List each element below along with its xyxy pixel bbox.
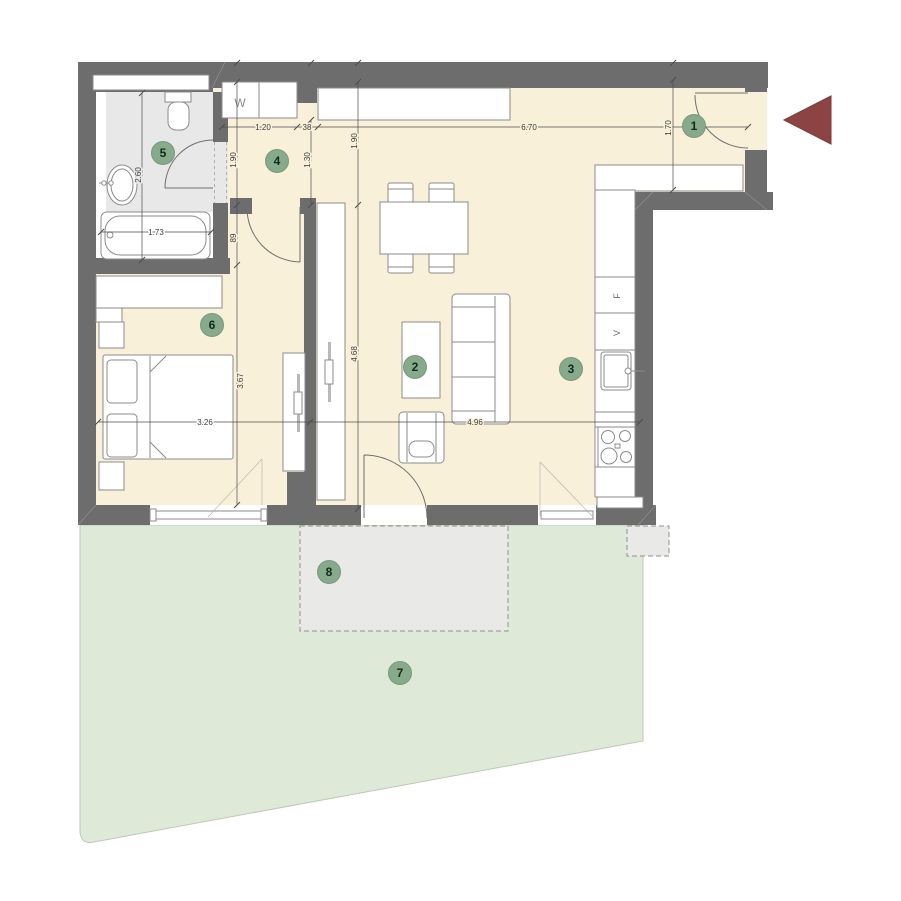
dim-entry-depth: 1.70	[664, 120, 673, 136]
dim-living-depth: 4.68	[350, 346, 359, 362]
room-badge-3: 3	[560, 358, 583, 381]
washer-closet-right	[259, 82, 297, 118]
floor-plan-svg: W F V	[0, 0, 901, 901]
entry-doorway-floor	[745, 92, 767, 150]
bedroom-window-cap-left	[150, 509, 156, 521]
sofa	[452, 294, 510, 424]
room-badge-2: 2	[404, 356, 427, 379]
badge-number-2: 2	[412, 360, 419, 374]
badge-number-4: 4	[274, 154, 281, 168]
room-badge-6: 6	[201, 314, 224, 337]
dim-door-width: 89	[229, 233, 238, 242]
wall-entry-cap-top	[745, 62, 767, 92]
entrance-arrow-icon	[784, 96, 831, 144]
nightstand-top	[99, 322, 124, 348]
toilet-bowl	[168, 102, 189, 130]
chair-top-left	[388, 183, 413, 203]
dining-table	[380, 202, 468, 254]
bedroom-window-frame	[153, 511, 264, 519]
hall-closets: W	[222, 82, 510, 120]
badge-number-6: 6	[209, 318, 216, 332]
wall-niche-chunk	[297, 83, 317, 103]
nightstand-bottom	[99, 462, 124, 490]
bedroom-wardrobe-step	[96, 308, 122, 322]
pillow-top	[107, 360, 137, 403]
wall-kitchen-top	[633, 192, 773, 210]
bath-door-opening-floor	[213, 142, 228, 203]
bedroom-wardrobe-top	[96, 276, 222, 308]
dim-hall-left-depth: 1.90	[229, 152, 238, 168]
dim-hall-mid-depth: 1.30	[303, 152, 312, 168]
room-badge-8: 8	[318, 561, 341, 584]
dim-niche-width: 38	[303, 123, 312, 132]
terrace-door-opening	[361, 505, 427, 525]
room-badge-4: 4	[266, 150, 289, 173]
top-counter	[318, 88, 510, 120]
living-closet-handle	[325, 360, 333, 384]
room-badge-1: 1	[683, 115, 706, 138]
chair-bottom-right	[429, 253, 454, 273]
chair-bottom-left	[388, 253, 413, 273]
kitchen-faucet-base	[625, 368, 631, 374]
kitchen-window-sill	[597, 497, 643, 508]
dim-bath-depth: 2.60	[134, 167, 143, 183]
washer-label: W	[234, 96, 246, 110]
kitchen-fixtures: F V	[595, 165, 743, 497]
wall-right-lower	[635, 210, 653, 525]
site	[80, 525, 669, 843]
wall-entry-cap-bottom	[745, 150, 767, 192]
side-step-area	[627, 526, 669, 556]
chair-top-right	[429, 183, 454, 203]
badge-number-1: 1	[691, 119, 698, 133]
badge-number-3: 3	[568, 362, 575, 376]
wall-left	[78, 62, 96, 525]
floor-plan-page: W F V	[0, 0, 901, 901]
dim-hall-right-depth: 1.90	[350, 133, 359, 149]
toilet-tank	[165, 92, 191, 102]
armchair	[399, 412, 444, 463]
ventilation-label: V	[612, 330, 622, 336]
fridge-label: F	[612, 293, 622, 299]
wall-central-pier	[287, 472, 316, 505]
room-badge-5: 5	[152, 142, 175, 165]
dim-bedroom-width: 3.26	[197, 418, 213, 427]
sink-tap-1	[102, 181, 106, 185]
dim-living-top-width: 6.70	[521, 123, 537, 132]
kitchen-counter-top-row	[595, 165, 743, 191]
room-badge-7: 7	[389, 662, 412, 685]
bedroom-closet-handle	[294, 392, 302, 414]
dim-bedroom-depth: 3.67	[236, 373, 245, 389]
bedroom-window-cap-right	[261, 509, 267, 521]
dim-living-width: 4.96	[467, 418, 483, 427]
living-window-frame	[541, 511, 593, 519]
dim-tub-length: 1.73	[148, 228, 164, 237]
dim-closet-width: 1.20	[255, 123, 271, 132]
pillow-bottom	[107, 414, 137, 457]
bathtub-faucet	[107, 232, 113, 238]
badge-number-5: 5	[160, 146, 167, 160]
badge-number-8: 8	[326, 565, 333, 579]
bath-top-window	[93, 75, 209, 90]
bathroom-sink-counter	[96, 92, 106, 212]
sink-tap-2	[109, 181, 113, 185]
wall-bath-bottom	[78, 258, 230, 274]
wall-hall-pillar-left	[230, 198, 252, 214]
living-closet-group	[317, 203, 345, 500]
badge-number-7: 7	[397, 666, 404, 680]
wall-central	[304, 198, 316, 505]
